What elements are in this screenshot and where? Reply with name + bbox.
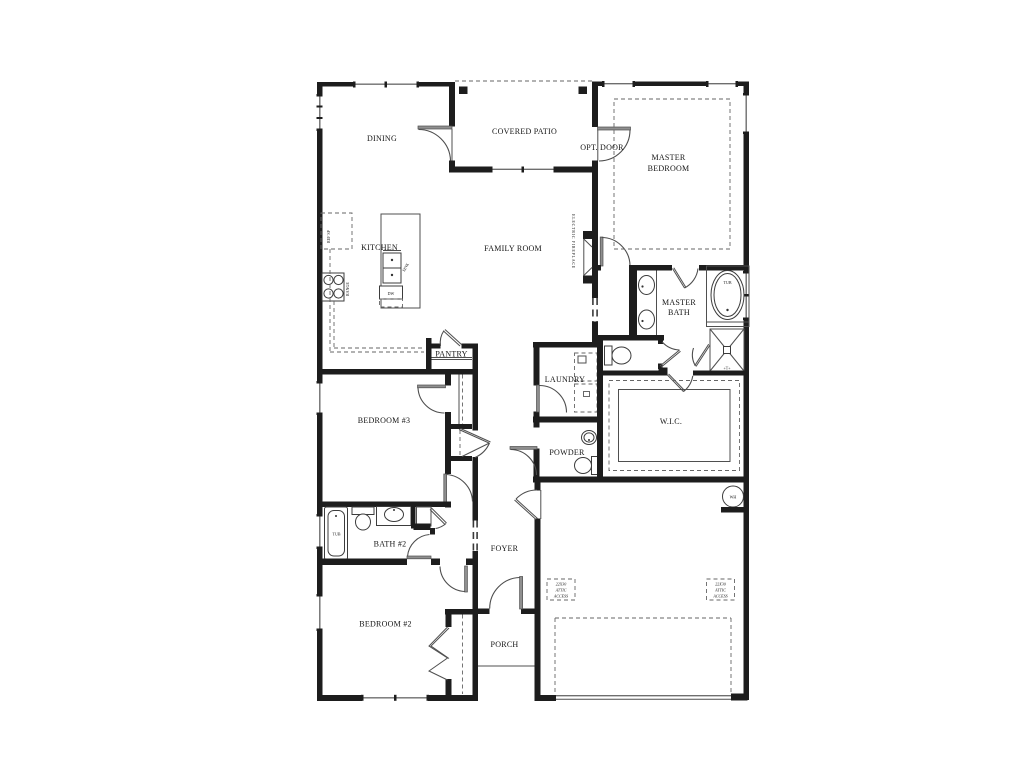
svg-text:COVERED PATIO: COVERED PATIO	[492, 127, 557, 136]
svg-text:KITCHEN: KITCHEN	[361, 243, 398, 252]
svg-text:BATH: BATH	[668, 308, 690, 317]
svg-text:OPT. DOOR: OPT. DOOR	[580, 143, 624, 152]
svg-text:22X30: 22X30	[556, 582, 566, 587]
svg-text:ATTIC: ATTIC	[555, 588, 567, 593]
svg-text:ATTIC: ATTIC	[714, 588, 726, 593]
svg-text:ELECTRIC FIREPLACE: ELECTRIC FIREPLACE	[571, 214, 576, 269]
svg-text:PORCH: PORCH	[491, 640, 519, 649]
svg-text:FOYER: FOYER	[491, 544, 519, 553]
svg-text:FAMILY ROOM: FAMILY ROOM	[484, 244, 542, 253]
svg-text:WH: WH	[730, 495, 737, 500]
svg-text:DW: DW	[388, 291, 395, 296]
svg-text:+T+: +T+	[724, 366, 732, 371]
svg-text:RANGE: RANGE	[345, 282, 350, 296]
svg-text:LAUNDRY: LAUNDRY	[545, 375, 585, 384]
svg-text:TUB: TUB	[333, 532, 341, 537]
svg-text:BEDROOM #3: BEDROOM #3	[358, 416, 411, 425]
svg-text:TUB: TUB	[724, 280, 732, 285]
svg-text:BEDROOM: BEDROOM	[648, 164, 690, 173]
svg-text:BEDROOM #2: BEDROOM #2	[359, 620, 412, 629]
svg-text:MASTER: MASTER	[662, 298, 696, 307]
svg-text:ACCESS: ACCESS	[553, 594, 568, 599]
svg-text:POWDER: POWDER	[549, 448, 585, 457]
svg-text:22X30: 22X30	[715, 582, 725, 587]
svg-text:PANTRY: PANTRY	[435, 350, 467, 359]
svg-text:W.I.C.: W.I.C.	[660, 417, 682, 426]
svg-text:MASTER: MASTER	[652, 153, 686, 162]
svg-text:ACCESS: ACCESS	[712, 594, 727, 599]
svg-text:DINING: DINING	[367, 134, 397, 143]
svg-text:REF SP: REF SP	[326, 229, 331, 243]
svg-text:BATH #2: BATH #2	[374, 540, 407, 549]
